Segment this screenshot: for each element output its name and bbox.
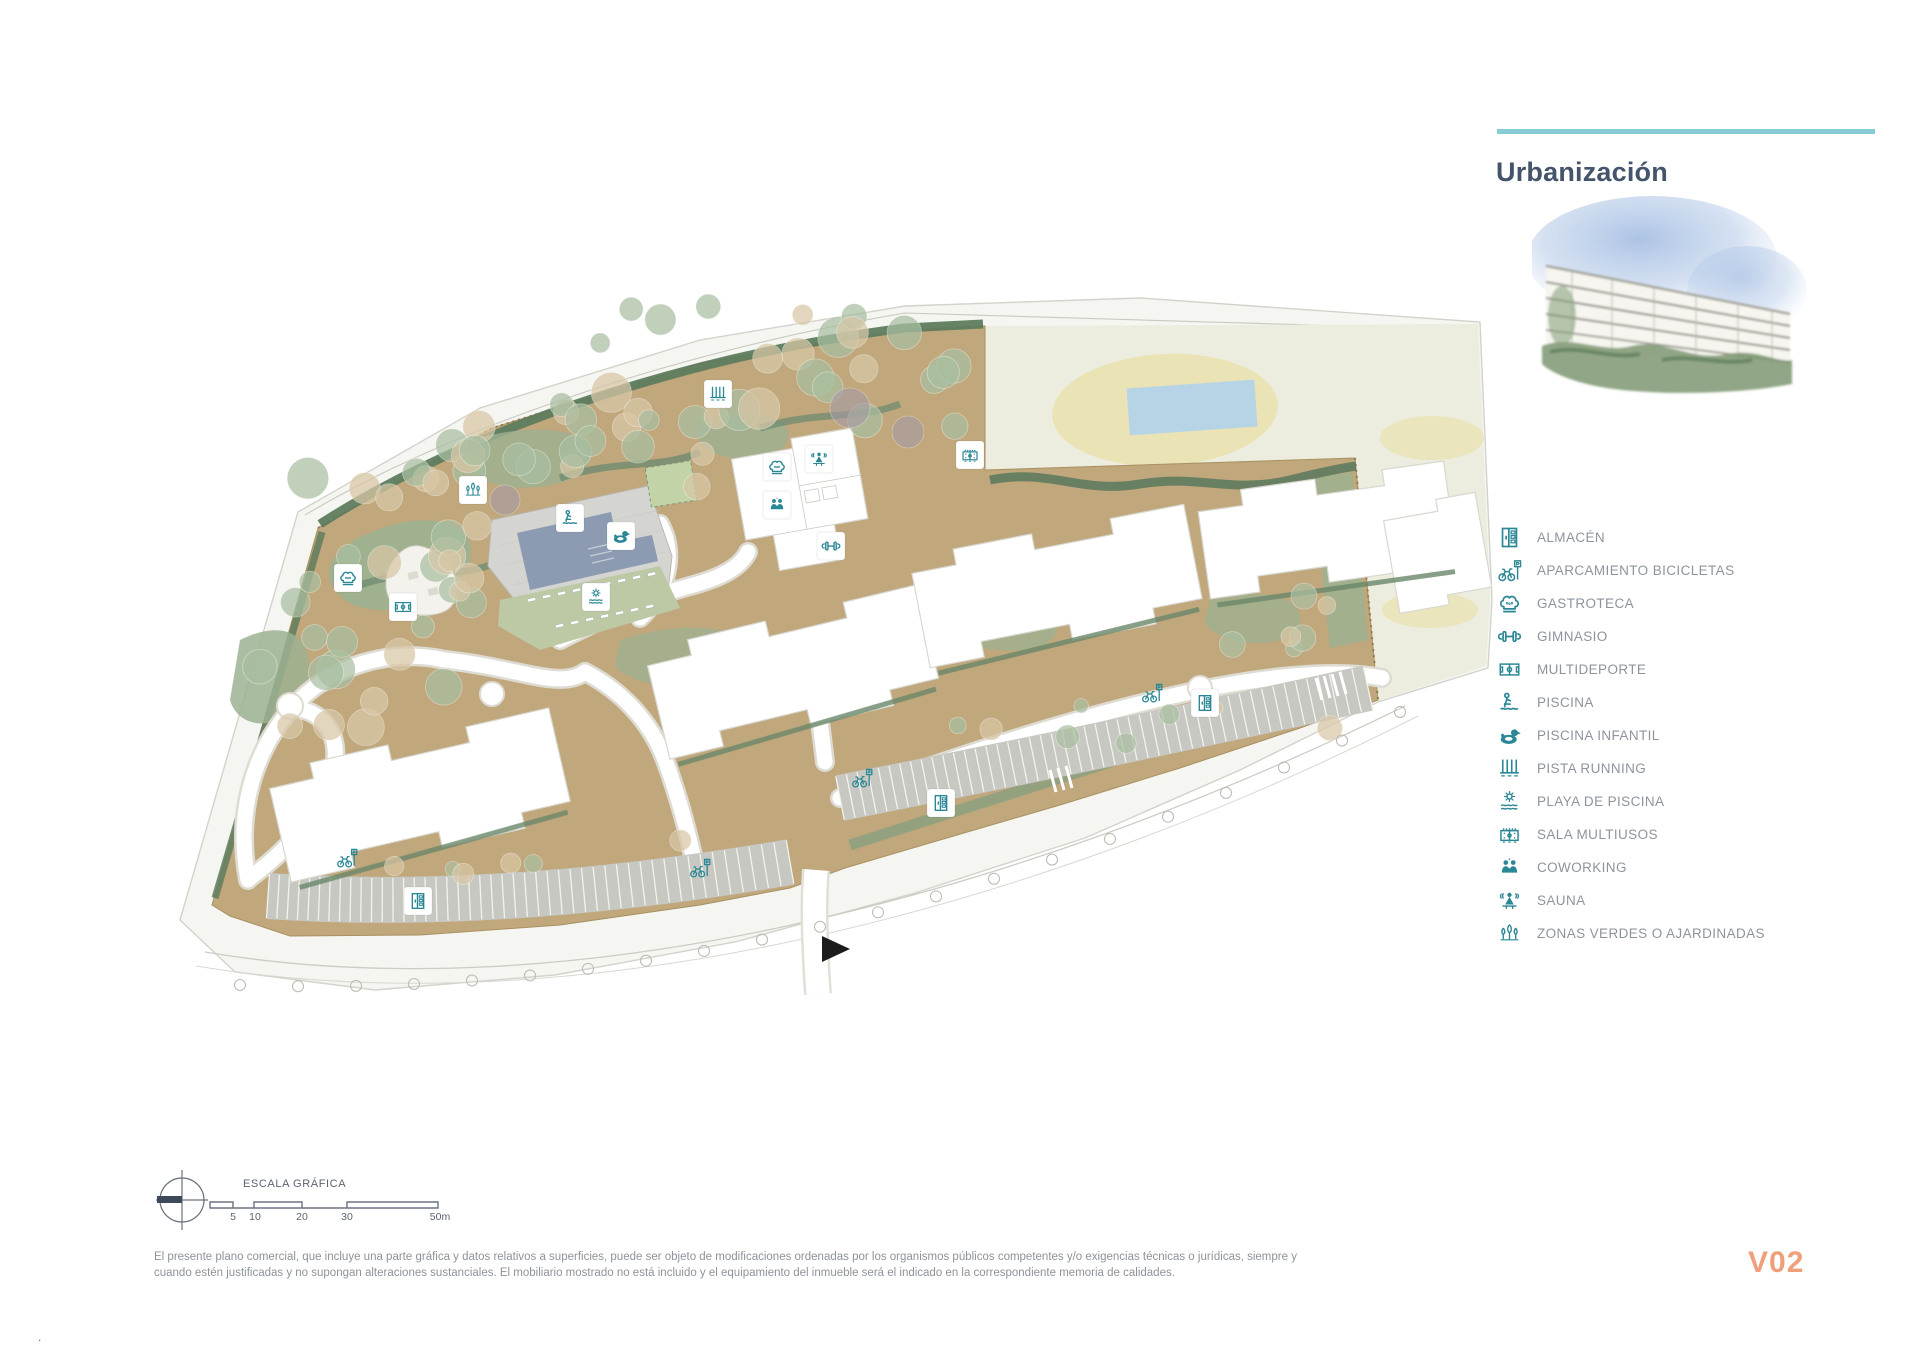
corner-dot: . xyxy=(38,1330,41,1344)
legend-item-pista-running: PISTA RUNNING xyxy=(1496,755,1765,781)
piscina-infantil-icon xyxy=(1496,722,1523,749)
map-icon-gastroteca xyxy=(334,564,362,592)
legend-label: ZONAS VERDES O AJARDINADAS xyxy=(1537,926,1765,941)
compass xyxy=(156,1170,208,1230)
legend-label: APARCAMIENTO BICICLETAS xyxy=(1537,563,1735,578)
bike-parking-icon xyxy=(1496,557,1523,584)
map-icon-gimnasio xyxy=(817,532,845,560)
scale-bar xyxy=(210,1202,438,1208)
scale-label-10: 10 xyxy=(249,1211,261,1223)
legend-item-sauna: SAUNA xyxy=(1496,887,1765,913)
legend-label: PISCINA xyxy=(1537,695,1594,710)
scale-label-5: 5 xyxy=(230,1211,236,1223)
legend-label: PISTA RUNNING xyxy=(1537,761,1646,776)
coworking-icon xyxy=(1496,854,1523,881)
zonas-verdes-icon xyxy=(1496,920,1523,947)
legend-item-bike-parking: APARCAMIENTO BICICLETAS xyxy=(1496,557,1765,583)
sauna-icon xyxy=(1496,887,1523,914)
legend-item-playa-piscina: PLAYA DE PISCINA xyxy=(1496,788,1765,814)
map-icon-almacen xyxy=(404,887,432,915)
map-icon-piscina xyxy=(556,504,584,532)
multideporte-icon xyxy=(1496,656,1523,683)
legend-item-multideporte: MULTIDEPORTE xyxy=(1496,656,1765,682)
playa-piscina-icon xyxy=(1496,788,1523,815)
legend-item-gimnasio: GIMNASIO xyxy=(1496,623,1765,649)
legend-item-piscina: PISCINA xyxy=(1496,689,1765,715)
legend-label: GIMNASIO xyxy=(1537,629,1608,644)
scale-label-20: 20 xyxy=(296,1211,308,1223)
map-icon-sauna xyxy=(805,445,833,473)
legend-item-piscina-infantil: PISCINA INFANTIL xyxy=(1496,722,1765,748)
map-icon-gastroteca xyxy=(763,453,791,481)
map-icon-pista-running xyxy=(704,380,732,408)
map-icon-playa-piscina xyxy=(582,583,610,611)
legend-label: GASTROTECA xyxy=(1537,596,1634,611)
building-rendering xyxy=(1532,196,1808,414)
sala-multiusos-icon xyxy=(1496,821,1523,848)
entrance-arrow xyxy=(822,936,850,962)
legend-label: SALA MULTIUSOS xyxy=(1537,827,1658,842)
map-icon-coworking xyxy=(763,491,791,519)
legend-item-almacen: ALMACÉN xyxy=(1496,524,1765,550)
version-badge: V02 xyxy=(1748,1246,1804,1280)
page-title: Urbanización xyxy=(1496,157,1668,188)
legend-label: COWORKING xyxy=(1537,860,1627,875)
legend-item-zonas-verdes: ZONAS VERDES O AJARDINADAS xyxy=(1496,920,1765,946)
disclaimer-line-2: cuando estén justificadas y no supongan … xyxy=(154,1265,1414,1281)
disclaimer-line-1: El presente plano comercial, que incluye… xyxy=(154,1249,1414,1265)
map-icon-almacen xyxy=(927,789,955,817)
gimnasio-icon xyxy=(1496,623,1523,650)
sports-field xyxy=(1127,380,1258,436)
gastroteca-icon xyxy=(1496,590,1523,617)
accent-bar xyxy=(1497,129,1875,134)
disclaimer: El presente plano comercial, que incluye… xyxy=(154,1249,1414,1281)
piscina-icon xyxy=(1496,689,1523,716)
legend-label: PISCINA INFANTIL xyxy=(1537,728,1660,743)
legend-item-coworking: COWORKING xyxy=(1496,854,1765,880)
almacen-icon xyxy=(1496,524,1523,551)
scale-label-50m: 50m xyxy=(430,1211,450,1223)
legend-item-sala-multiusos: SALA MULTIUSOS xyxy=(1496,821,1765,847)
legend-label: MULTIDEPORTE xyxy=(1537,662,1646,677)
map-icon-piscina-infantil xyxy=(607,522,635,550)
map-icon-zonas-verdes xyxy=(459,476,487,504)
legend: ALMACÉNAPARCAMIENTO BICICLETASGASTROTECA… xyxy=(1496,524,1765,946)
pista-running-icon xyxy=(1496,755,1523,782)
map-icon-sala-multiusos xyxy=(956,441,984,469)
legend-label: SAUNA xyxy=(1537,893,1586,908)
map-icon-multideporte xyxy=(389,593,417,621)
scale-title: ESCALA GRÁFICA xyxy=(243,1178,346,1190)
scale-label-30: 30 xyxy=(341,1211,353,1223)
legend-item-gastroteca: GASTROTECA xyxy=(1496,590,1765,616)
legend-label: PLAYA DE PISCINA xyxy=(1537,794,1664,809)
legend-label: ALMACÉN xyxy=(1537,530,1605,545)
map-icon-almacen xyxy=(1191,689,1219,717)
